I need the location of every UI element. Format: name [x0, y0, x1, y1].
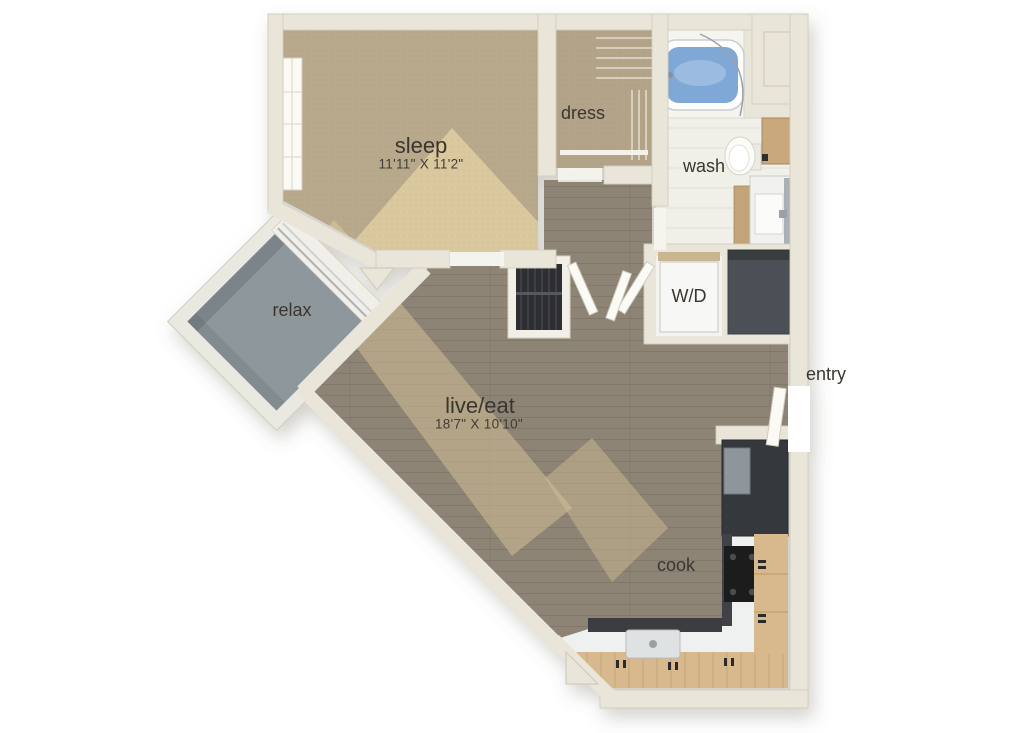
- laundry-shelf: [658, 252, 720, 261]
- wall-bedroom-bottom-a: [376, 250, 450, 268]
- water-highlight: [674, 60, 726, 86]
- label-live-eat: live/eat: [445, 395, 515, 417]
- side-wood-unit: [734, 186, 750, 248]
- floor-plan: sleep 11'11" X 11'2" dress wash W/D rela…: [0, 0, 1023, 733]
- label-cook: cook: [657, 556, 695, 574]
- wall-bottom: [600, 690, 808, 708]
- vanity: [750, 176, 792, 252]
- entry-door-opening: [788, 386, 810, 452]
- wall-bedroom-dress: [538, 14, 556, 176]
- microwave: [724, 448, 750, 494]
- bath-door-threshold: [654, 208, 666, 250]
- label-wd: W/D: [672, 287, 707, 305]
- wall-right-lower: [790, 450, 808, 708]
- wall-bedroom-bottom-b: [500, 250, 556, 268]
- bedroom-window: [283, 58, 302, 190]
- label-live-eat-dims: 18'7" X 10'10": [435, 417, 523, 431]
- label-entry: entry: [806, 365, 846, 383]
- bedroom-door-threshold: [450, 252, 504, 266]
- label-sleep: sleep: [395, 135, 448, 157]
- label-sleep-dims: 11'11" X 11'2": [379, 157, 464, 171]
- utility-shade: [728, 250, 794, 260]
- floor-plan-drawing: [0, 0, 1023, 733]
- closet-rod: [560, 150, 648, 155]
- utility-closet: [728, 250, 794, 334]
- wall-right-upper: [790, 14, 808, 388]
- wall-left: [268, 14, 283, 210]
- kitchen-sink: [626, 630, 680, 658]
- dress-door-threshold: [558, 168, 602, 182]
- closet-dress: [556, 30, 652, 168]
- laundry-utility: [644, 244, 808, 344]
- cabinets-right: [754, 534, 788, 654]
- wall-dress-bottom: [604, 166, 656, 184]
- wall-bath-left: [652, 14, 668, 206]
- wall-cabinet: [762, 118, 794, 164]
- label-dress: dress: [561, 104, 605, 122]
- label-wash: wash: [683, 157, 725, 175]
- label-relax: relax: [272, 301, 311, 319]
